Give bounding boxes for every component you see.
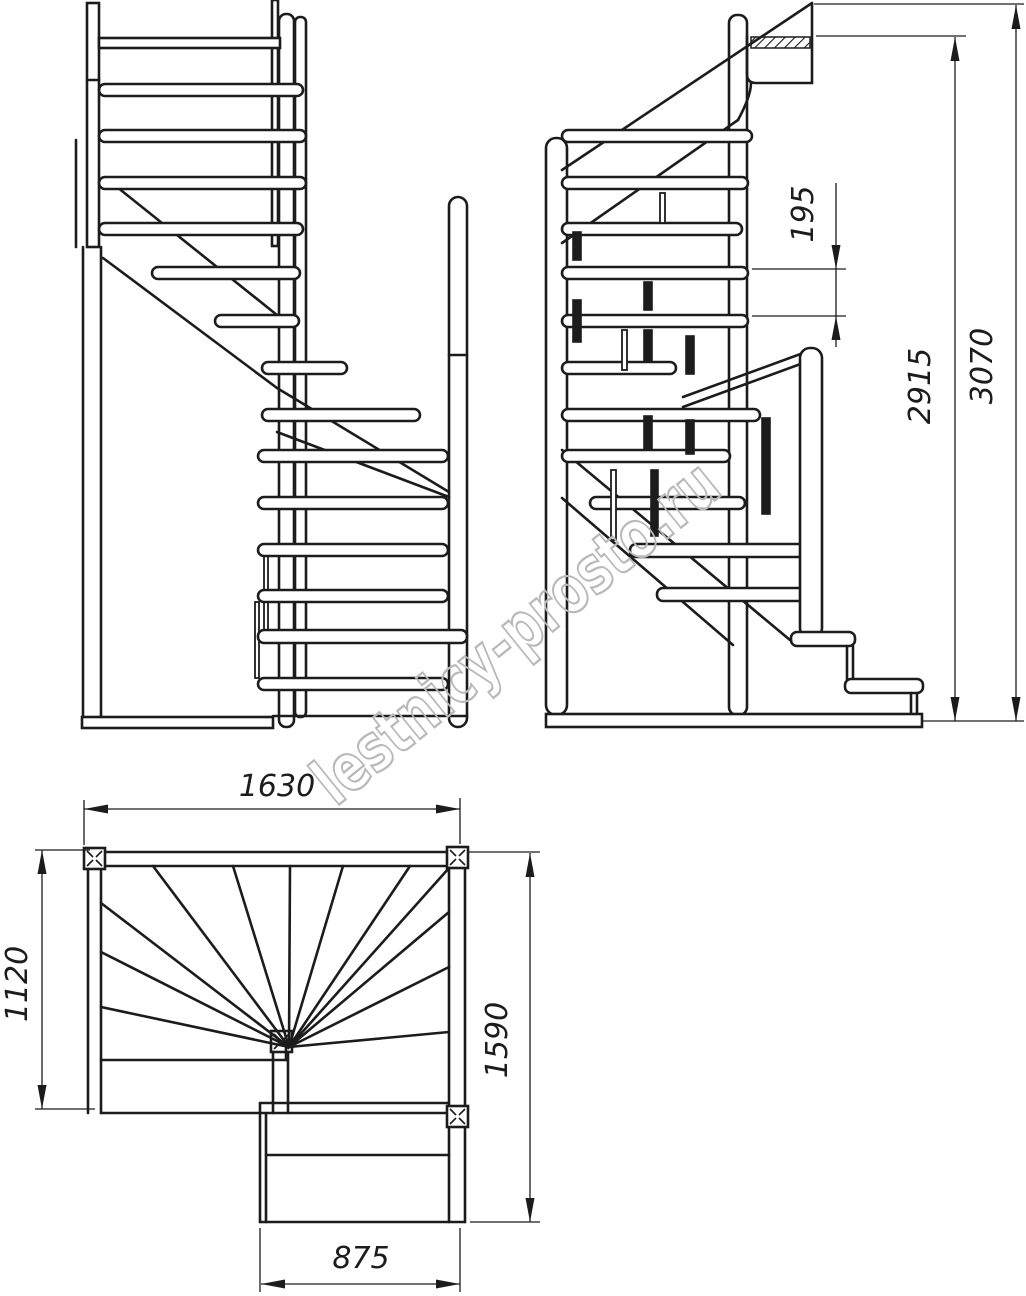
dim-total-height: 3070 (965, 328, 1000, 404)
dim-flight-width: 875 (332, 1241, 389, 1276)
dim-handrail-level-height: 2915 (903, 348, 938, 424)
drawing-sheet: 1630 1120 1590 875 195 2915 (0, 0, 1026, 1296)
side-bottom-newel (800, 348, 822, 638)
plan-post-top-right (447, 847, 468, 868)
front-elevation-view (76, 0, 467, 728)
dim-riser-spacing: 195 (786, 185, 821, 242)
plan-view (84, 847, 468, 1222)
side-elevation-view (546, 3, 923, 727)
dim-plan-left-depth: 1120 (0, 946, 35, 1022)
staircase-blueprint: 1630 1120 1590 875 195 2915 (0, 0, 1026, 1296)
plan-post-top-left (84, 848, 105, 869)
dim-plan-overall-width: 1630 (239, 769, 315, 804)
dim-plan-right-depth: 1590 (480, 1002, 515, 1078)
plan-post-bottom-right (447, 1106, 468, 1127)
